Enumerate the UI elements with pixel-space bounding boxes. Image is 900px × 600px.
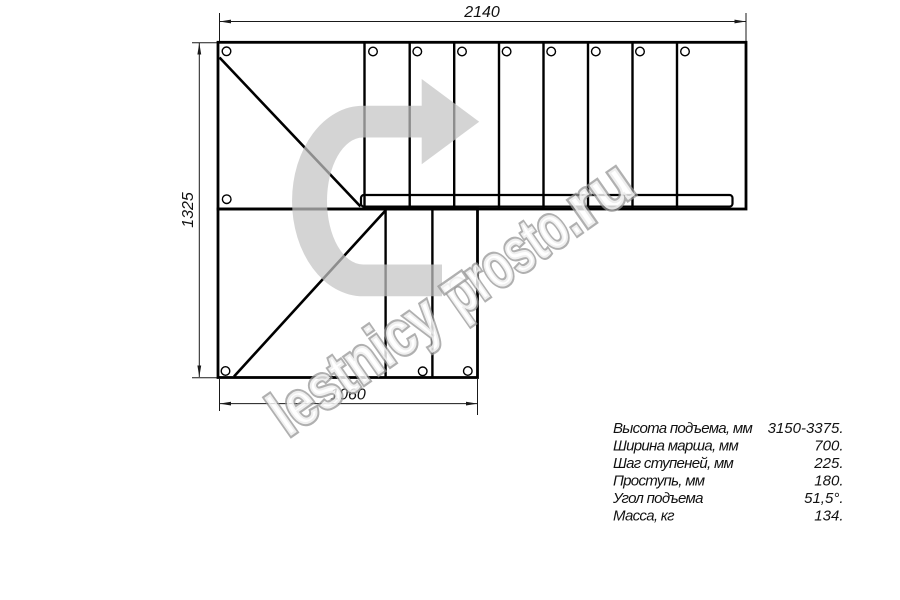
svg-text:Шаг ступеней, мм: Шаг ступеней, мм [613,455,734,472]
svg-text:700.: 700. [814,438,843,455]
svg-text:Угол подъема: Угол подъема [612,490,703,507]
svg-text:134.: 134. [814,508,843,525]
svg-text:2140: 2140 [463,4,500,21]
svg-text:51,5°.: 51,5°. [804,490,843,507]
svg-text:Высота подъема, мм: Высота подъема, мм [613,420,752,437]
svg-text:Масса, кг: Масса, кг [613,508,675,525]
svg-text:180.: 180. [814,473,843,490]
svg-text:1325: 1325 [180,192,197,228]
svg-text:3150-3375.: 3150-3375. [768,420,844,437]
svg-text:Ширина марша, мм: Ширина марша, мм [613,438,738,455]
svg-text:Проступь, мм: Проступь, мм [613,473,705,490]
svg-text:225.: 225. [813,455,843,472]
